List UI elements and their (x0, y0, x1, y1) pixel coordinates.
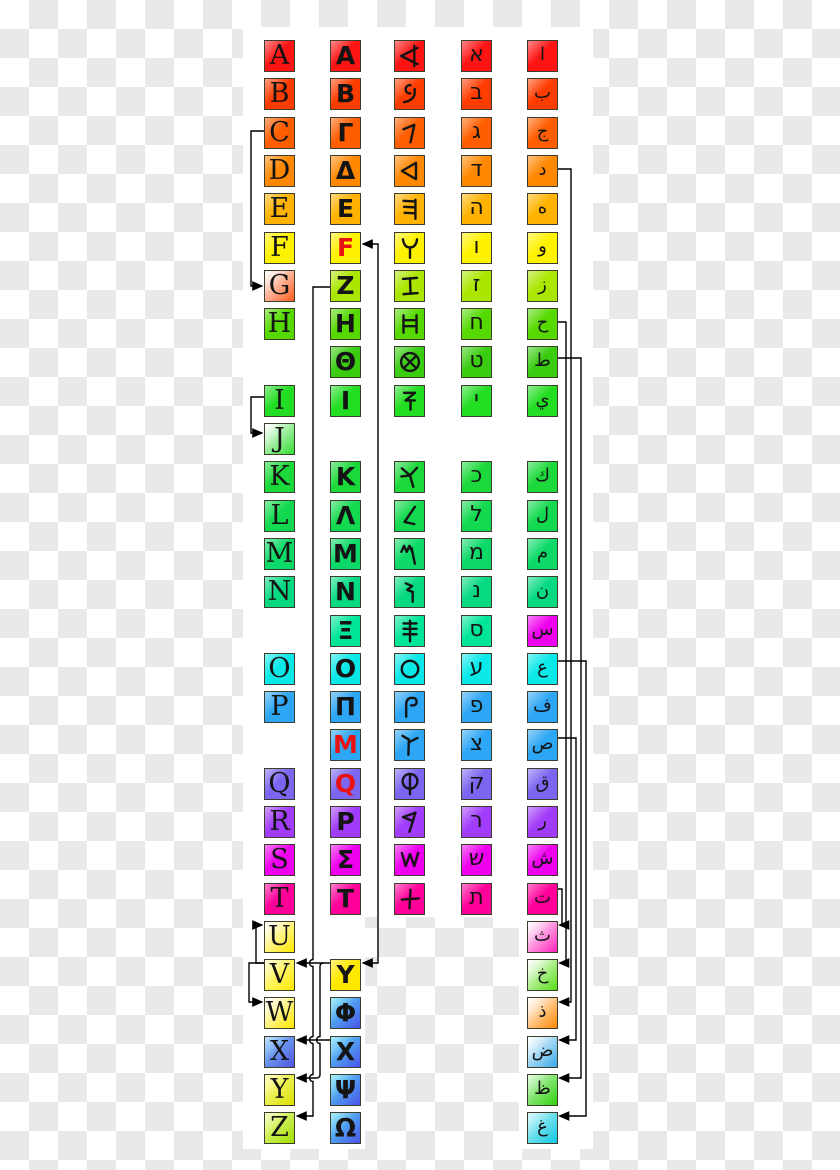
cell-phoenician-qoph (394, 768, 425, 800)
arabic-letter: ت (534, 889, 551, 907)
cell-latin-W: W (264, 997, 295, 1029)
cell-phoenician-lamedh (394, 500, 425, 532)
cell-arabic-ه: ه (527, 193, 558, 225)
cell-hebrew-ז: ז (461, 270, 492, 302)
cell-hebrew-ח: ח (461, 308, 492, 340)
cell-hebrew-ג: ג (461, 117, 492, 149)
phoenician-nun-icon (397, 579, 423, 605)
cell-arabic-ن: ن (527, 576, 558, 608)
cell-latin-M: M (264, 538, 295, 570)
greek-letter: Χ (336, 1039, 355, 1064)
greek-letter: Σ (337, 847, 354, 872)
cell-latin-P: P (264, 691, 295, 723)
cell-greek-Λ: Λ (330, 500, 361, 532)
phoenician-taw-icon (397, 886, 423, 912)
cell-arabic-ص: ص (527, 729, 558, 761)
latin-letter: X (270, 1038, 289, 1065)
cell-greek-Α: Α (330, 40, 361, 72)
hebrew-letter: כ (471, 465, 483, 487)
phoenician-mem-icon (397, 541, 423, 567)
cell-hebrew-ט: ט (461, 346, 492, 378)
cell-latin-V: V (264, 959, 295, 991)
cell-greek-Ρ: Ρ (330, 806, 361, 838)
phoenician-zayin-icon (397, 273, 423, 299)
cell-arabic-ك: ك (527, 461, 558, 493)
cell-greek-Ε: Ε (330, 193, 361, 225)
cell-hebrew-ד: ד (461, 155, 492, 187)
phoenician-tsade-icon (397, 732, 423, 758)
hebrew-letter: ע (470, 657, 484, 679)
arabic-letter: و (538, 238, 547, 256)
latin-letter: P (270, 693, 288, 720)
cell-latin-O: O (264, 653, 295, 685)
arabic-letter: ط (534, 352, 551, 370)
cell-latin-C: C (264, 117, 295, 149)
cell-phoenician-shin (394, 844, 425, 876)
cell-latin-Y: Y (264, 1074, 295, 1106)
latin-letter: N (268, 578, 292, 605)
cell-greek-Σ: Σ (330, 844, 361, 876)
cell-greek-Χ: Χ (330, 1036, 361, 1068)
arabic-letter: ز (538, 276, 547, 294)
arabic-letter: ل (536, 506, 549, 524)
cell-greek-Q: Q (330, 768, 361, 800)
latin-letter: Q (268, 770, 290, 797)
arabic-letter: ف (533, 697, 552, 715)
cell-greek-Ω: Ω (330, 1112, 361, 1144)
cell-greek-Β: Β (330, 78, 361, 110)
latin-letter: Y (271, 1076, 289, 1103)
hebrew-letter: ז (473, 274, 481, 296)
cell-arabic-خ: خ (527, 959, 558, 991)
cell-arabic-م: م (527, 538, 558, 570)
cell-arabic-ع: ع (527, 653, 558, 685)
cell-arabic-غ: غ (527, 1112, 558, 1144)
latin-letter: K (269, 463, 289, 490)
cell-arabic-ب: ب (527, 78, 558, 110)
cell-arabic-ظ: ظ (527, 1074, 558, 1106)
greek-letter: Δ (336, 158, 355, 183)
cell-greek-Ν: Ν (330, 576, 361, 608)
phoenician-ayin-icon (397, 656, 423, 682)
cell-latin-Z: Z (264, 1112, 295, 1144)
arabic-letter: ض (532, 1042, 554, 1060)
cell-arabic-ش: ش (527, 844, 558, 876)
cell-phoenician-zayin (394, 270, 425, 302)
arabic-letter: ش (532, 850, 554, 868)
cell-hebrew-ר: ר (461, 806, 492, 838)
phoenician-yodh-icon (397, 388, 423, 414)
arabic-letter: س (532, 621, 554, 639)
arabic-letter: ن (536, 582, 549, 600)
cell-hebrew-נ: נ (461, 576, 492, 608)
greek-letter: Β (336, 81, 355, 106)
cell-arabic-ا: ا (527, 40, 558, 72)
greek-letter: Γ (338, 120, 354, 145)
latin-letter: E (270, 195, 290, 222)
cell-arabic-ض: ض (527, 1036, 558, 1068)
cell-hebrew-ק: ק (461, 768, 492, 800)
cell-hebrew-ע: ע (461, 653, 492, 685)
arabic-letter: ج (537, 123, 549, 141)
cell-phoenician-mem (394, 538, 425, 570)
greek-letter: Μ (333, 541, 358, 566)
cell-greek-Κ: Κ (330, 461, 361, 493)
hebrew-letter: מ (469, 542, 484, 564)
cell-phoenician-aleph (394, 40, 425, 72)
arabic-letter: ص (532, 735, 554, 753)
greek-letter: Y (336, 962, 354, 987)
cell-phoenician-daleth (394, 155, 425, 187)
cell-phoenician-waw (394, 232, 425, 264)
cell-greek-Ι: Ι (330, 385, 361, 417)
latin-letter: U (268, 923, 291, 950)
arabic-letter: ه (538, 199, 547, 217)
cell-phoenician-gimel (394, 117, 425, 149)
arabic-letter: ظ (534, 1080, 551, 1098)
phoenician-beth-icon (397, 81, 423, 107)
hebrew-letter: א (469, 44, 484, 66)
latin-letter: T (270, 885, 288, 912)
cell-greek-Φ: Φ (330, 997, 361, 1029)
hebrew-letter: ג (472, 121, 481, 143)
latin-letter: J (274, 425, 285, 452)
greek-letter: Α (336, 43, 355, 68)
cell-latin-B: B (264, 78, 295, 110)
arabic-letter: ع (537, 659, 548, 677)
arabic-letter: م (537, 544, 548, 562)
hebrew-letter: ש (469, 848, 485, 870)
cell-greek-Η: Η (330, 308, 361, 340)
cell-greek-Γ: Γ (330, 117, 361, 149)
cell-arabic-ز: ز (527, 270, 558, 302)
greek-letter: Φ (335, 1000, 356, 1025)
latin-letter: Z (270, 1114, 289, 1141)
cell-hebrew-י: י (461, 385, 492, 417)
greek-letter: Ν (335, 579, 356, 604)
cell-latin-L: L (264, 500, 295, 532)
cell-phoenician-nun (394, 576, 425, 608)
phoenician-lamedh-icon (397, 503, 423, 529)
cell-latin-S: S (264, 844, 295, 876)
greek-letter: F (337, 235, 354, 260)
cell-hebrew-ס: ס (461, 615, 492, 647)
cell-greek-Ζ: Ζ (330, 270, 361, 302)
phoenician-qoph-icon (397, 771, 423, 797)
cell-arabic-ح: ح (527, 308, 558, 340)
cell-phoenician-samekh (394, 615, 425, 647)
phoenician-resh-icon (397, 809, 423, 835)
cell-greek-F: F (330, 232, 361, 264)
arabic-letter: ي (535, 391, 549, 409)
hebrew-letter: ב (470, 82, 483, 104)
cell-phoenician-tsade (394, 729, 425, 761)
cell-latin-X: X (264, 1036, 295, 1068)
phoenician-aleph-icon (397, 43, 423, 69)
cell-arabic-س: س (527, 615, 558, 647)
cell-phoenician-yodh (394, 385, 425, 417)
arabic-letter: ذ (538, 1003, 546, 1021)
latin-letter: R (269, 808, 289, 835)
cell-arabic-د: د (527, 155, 558, 187)
latin-letter: A (270, 42, 290, 69)
hebrew-letter: ס (469, 619, 483, 641)
phoenician-pe-icon (397, 694, 423, 720)
hebrew-letter: ט (469, 350, 483, 372)
greek-letter: Τ (337, 886, 354, 911)
cell-greek-Δ: Δ (330, 155, 361, 187)
latin-letter: H (268, 310, 292, 337)
hebrew-letter: ח (469, 312, 483, 334)
cell-arabic-ف: ف (527, 691, 558, 723)
cell-arabic-ث: ث (527, 921, 558, 953)
cell-phoenician-teth (394, 346, 425, 378)
greek-letter: Θ (335, 349, 356, 374)
greek-letter: Λ (336, 503, 355, 528)
cell-hebrew-ו: ו (461, 232, 492, 264)
cell-phoenician-he (394, 193, 425, 225)
cell-latin-D: D (264, 155, 295, 187)
hebrew-letter: ו (474, 236, 480, 258)
cell-hebrew-פ: פ (461, 691, 492, 723)
cell-arabic-ق: ق (527, 768, 558, 800)
latin-letter: C (269, 119, 290, 146)
latin-letter: D (269, 157, 291, 184)
phoenician-he-icon (397, 196, 423, 222)
greek-letter: Κ (336, 464, 355, 489)
phoenician-daleth-icon (397, 158, 423, 184)
cell-arabic-ذ: ذ (527, 997, 558, 1029)
cell-hebrew-ב: ב (461, 78, 492, 110)
cell-latin-H: H (264, 308, 295, 340)
cell-greek-Y: Y (330, 959, 361, 991)
phoenician-samekh-icon (397, 618, 423, 644)
greek-letter: Q (335, 771, 356, 796)
arabic-letter: ب (534, 84, 551, 102)
hebrew-letter: ה (469, 197, 483, 219)
latin-letter: O (268, 655, 290, 682)
cell-latin-Q: Q (264, 768, 295, 800)
cell-hebrew-כ: כ (461, 461, 492, 493)
cell-latin-T: T (264, 883, 295, 915)
cell-arabic-و: و (527, 232, 558, 264)
phoenician-waw-icon (397, 235, 423, 261)
cell-phoenician-beth (394, 78, 425, 110)
hebrew-letter: צ (470, 733, 483, 755)
cell-arabic-ط: ط (527, 346, 558, 378)
latin-letter: B (270, 80, 290, 107)
latin-letter: G (269, 272, 291, 299)
arabic-letter: ح (537, 314, 549, 332)
cell-latin-N: N (264, 576, 295, 608)
latin-letter: W (266, 999, 294, 1026)
cell-greek-Ψ: Ψ (330, 1074, 361, 1106)
arabic-letter: غ (537, 1118, 548, 1136)
greek-letter: Η (335, 311, 356, 336)
cell-latin-I: I (264, 385, 295, 417)
cell-latin-E: E (264, 193, 295, 225)
latin-letter: S (270, 846, 289, 873)
cell-phoenician-pe (394, 691, 425, 723)
hebrew-letter: ק (469, 772, 485, 794)
cell-hebrew-צ: צ (461, 729, 492, 761)
hebrew-letter: ר (470, 810, 482, 832)
greek-letter: Ι (341, 388, 350, 413)
phoenician-kaph-icon (397, 464, 423, 490)
hebrew-letter: י (474, 389, 479, 411)
latin-letter: M (266, 540, 294, 567)
greek-letter: Ο (335, 656, 356, 681)
arabic-letter: ق (536, 774, 550, 792)
cell-latin-K: K (264, 461, 295, 493)
latin-letter: I (274, 387, 285, 414)
arabic-letter: ث (534, 927, 551, 945)
cell-phoenician-resh (394, 806, 425, 838)
hebrew-letter: פ (470, 695, 484, 717)
hebrew-letter: נ (472, 580, 481, 602)
greek-letter: M (333, 732, 358, 757)
cell-arabic-ج: ج (527, 117, 558, 149)
cell-greek-Ξ: Ξ (330, 615, 361, 647)
greek-letter: Ρ (336, 809, 354, 834)
greek-letter: Π (335, 694, 356, 719)
cell-greek-M: M (330, 729, 361, 761)
phoenician-shin-icon (397, 847, 423, 873)
alphabet-derivation-chart: AΑאاBΒבبCΓגجDΔדدEΕהهFFוوGΖזزHΗחحΘטطIΙיيJ… (0, 0, 840, 1170)
arabic-letter: د (538, 161, 546, 179)
hebrew-letter: ד (470, 159, 482, 181)
greek-letter: Ζ (336, 273, 354, 298)
cell-phoenician-taw (394, 883, 425, 915)
cell-hebrew-ה: ה (461, 193, 492, 225)
cell-latin-R: R (264, 806, 295, 838)
arabic-letter: ر (538, 812, 547, 830)
phoenician-gimel-icon (397, 120, 423, 146)
cell-phoenician-kaph (394, 461, 425, 493)
cell-latin-G: G (264, 270, 295, 302)
arabic-letter: ك (535, 467, 550, 485)
cell-arabic-ر: ر (527, 806, 558, 838)
arabic-letter: خ (537, 965, 549, 983)
cell-greek-Τ: Τ (330, 883, 361, 915)
cell-latin-F: F (264, 232, 295, 264)
phoenician-heth-icon (397, 311, 423, 337)
phoenician-teth-icon (397, 349, 423, 375)
latin-letter: L (271, 502, 289, 529)
hebrew-letter: ל (470, 504, 483, 526)
cell-latin-A: A (264, 40, 295, 72)
hebrew-letter: ת (469, 887, 483, 909)
greek-letter: Ε (337, 196, 354, 221)
cell-phoenician-ayin (394, 653, 425, 685)
greek-letter: Ψ (335, 1077, 356, 1102)
cell-hebrew-ל: ל (461, 500, 492, 532)
cell-hebrew-ת: ת (461, 883, 492, 915)
cell-phoenician-heth (394, 308, 425, 340)
cell-arabic-ت: ت (527, 883, 558, 915)
cell-latin-U: U (264, 921, 295, 953)
cell-greek-Θ: Θ (330, 346, 361, 378)
cell-arabic-ل: ل (527, 500, 558, 532)
greek-letter: Ξ (338, 618, 354, 643)
cell-greek-Ο: Ο (330, 653, 361, 685)
cell-arabic-ي: ي (527, 385, 558, 417)
cell-hebrew-מ: מ (461, 538, 492, 570)
latin-letter: F (270, 234, 289, 261)
greek-letter: Ω (335, 1115, 356, 1140)
cell-greek-Π: Π (330, 691, 361, 723)
arabic-letter: ا (540, 46, 545, 64)
cell-hebrew-ש: ש (461, 844, 492, 876)
cell-hebrew-א: א (461, 40, 492, 72)
cell-greek-Μ: Μ (330, 538, 361, 570)
cell-latin-J: J (264, 423, 295, 455)
latin-letter: V (270, 961, 290, 988)
